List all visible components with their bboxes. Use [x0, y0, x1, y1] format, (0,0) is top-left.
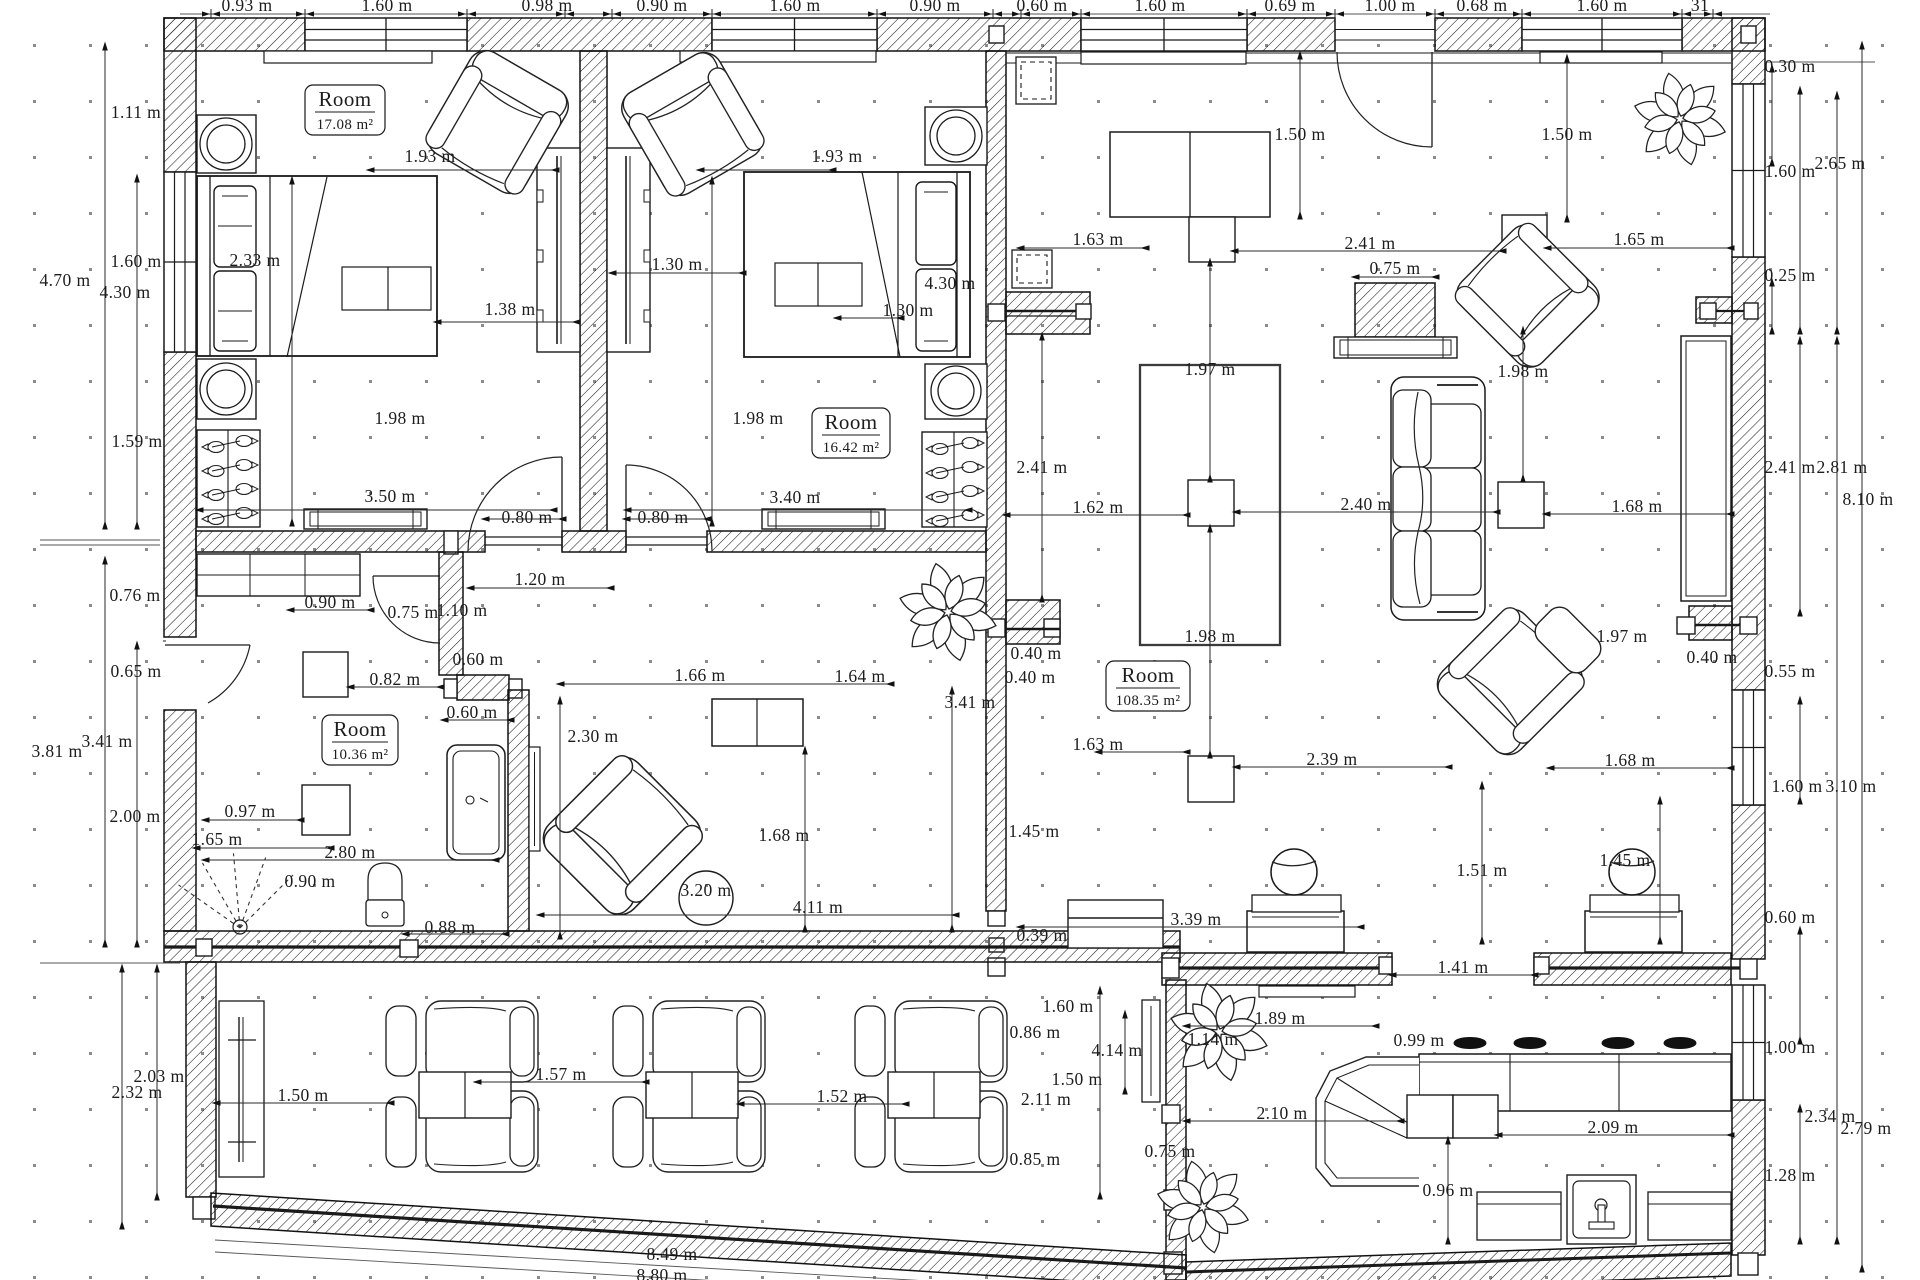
svg-text:1.28 m: 1.28 m: [1764, 1165, 1815, 1185]
svg-text:Room: Room: [1122, 663, 1175, 687]
svg-text:1.62 m: 1.62 m: [1072, 497, 1123, 517]
svg-text:1.97 m: 1.97 m: [1184, 359, 1235, 379]
svg-text:4.30 m: 4.30 m: [924, 273, 975, 293]
svg-text:0.40 m: 0.40 m: [1010, 643, 1061, 663]
svg-text:1.68 m: 1.68 m: [1611, 496, 1662, 516]
svg-text:3.41 m: 3.41 m: [944, 692, 995, 712]
svg-text:1.60 m: 1.60 m: [769, 0, 820, 15]
svg-text:10.36 m²: 10.36 m²: [332, 747, 389, 763]
svg-text:0.75 m: 0.75 m: [1369, 258, 1420, 278]
svg-text:0.68 m: 0.68 m: [1456, 0, 1507, 15]
svg-text:0.99 m: 0.99 m: [1393, 1030, 1444, 1050]
svg-text:1.60 m: 1.60 m: [1576, 0, 1627, 15]
svg-text:16.42 m²: 16.42 m²: [823, 440, 880, 456]
svg-text:2.79 m: 2.79 m: [1840, 1118, 1891, 1138]
svg-text:Room: Room: [334, 717, 387, 741]
svg-text:0.60 m: 0.60 m: [446, 702, 497, 722]
svg-text:17.08 m²: 17.08 m²: [317, 117, 374, 133]
svg-text:8.10 m: 8.10 m: [1842, 489, 1893, 509]
svg-text:2.10 m: 2.10 m: [1256, 1103, 1307, 1123]
svg-text:3.40 m: 3.40 m: [769, 487, 820, 507]
svg-text:1.45 m: 1.45 m: [1599, 850, 1650, 870]
svg-text:Room: Room: [825, 410, 878, 434]
svg-text:0.55 m: 0.55 m: [1764, 661, 1815, 681]
svg-text:1.98 m: 1.98 m: [374, 408, 425, 428]
svg-text:2.41 m: 2.41 m: [1764, 457, 1815, 477]
svg-text:1.60 m: 1.60 m: [110, 251, 161, 271]
svg-text:1.52 m: 1.52 m: [816, 1086, 867, 1106]
svg-text:0.65 m: 0.65 m: [110, 661, 161, 681]
svg-text:1.30 m: 1.30 m: [882, 300, 933, 320]
svg-text:1.30 m: 1.30 m: [651, 254, 702, 274]
svg-text:8.49 m: 8.49 m: [646, 1244, 697, 1264]
svg-text:1.20 m: 1.20 m: [514, 569, 565, 589]
svg-text:1.50 m: 1.50 m: [1051, 1069, 1102, 1089]
svg-text:3.41 m: 3.41 m: [81, 731, 132, 751]
svg-text:1.50 m: 1.50 m: [1541, 124, 1592, 144]
svg-text:2.30 m: 2.30 m: [567, 726, 618, 746]
svg-text:2.80 m: 2.80 m: [324, 842, 375, 862]
svg-text:0.69 m: 0.69 m: [1264, 0, 1315, 15]
svg-text:4.11 m: 4.11 m: [793, 897, 843, 917]
svg-text:0.30 m: 0.30 m: [1764, 56, 1815, 76]
svg-text:2.09 m: 2.09 m: [1587, 1117, 1638, 1137]
svg-text:1.60 m: 1.60 m: [1771, 776, 1822, 796]
svg-text:1.64 m: 1.64 m: [834, 666, 885, 686]
svg-text:2.00 m: 2.00 m: [109, 806, 160, 826]
svg-text:3.10 m: 3.10 m: [1825, 776, 1876, 796]
svg-text:1.14 m: 1.14 m: [1187, 1029, 1238, 1049]
svg-text:1.89 m: 1.89 m: [1254, 1008, 1305, 1028]
svg-text:1.98 m: 1.98 m: [732, 408, 783, 428]
svg-text:1.00 m: 1.00 m: [1764, 1037, 1815, 1057]
svg-text:3.50 m: 3.50 m: [364, 486, 415, 506]
svg-text:1.38 m: 1.38 m: [484, 299, 535, 319]
svg-text:1.60 m: 1.60 m: [1764, 161, 1815, 181]
svg-text:0.39 m: 0.39 m: [1016, 925, 1067, 945]
svg-text:1.63 m: 1.63 m: [1072, 229, 1123, 249]
svg-text:1.93 m: 1.93 m: [811, 146, 862, 166]
svg-text:2.11 m: 2.11 m: [1021, 1089, 1071, 1109]
svg-text:1.10 m: 1.10 m: [436, 600, 487, 620]
svg-text:2.40 m: 2.40 m: [1340, 494, 1391, 514]
svg-text:0.93 m: 0.93 m: [221, 0, 272, 15]
svg-text:0.88 m: 0.88 m: [424, 917, 475, 937]
svg-text:4.14 m: 4.14 m: [1091, 1040, 1142, 1060]
svg-text:0.90 m: 0.90 m: [909, 0, 960, 15]
svg-text:2.41 m: 2.41 m: [1344, 233, 1395, 253]
svg-text:1.65 m: 1.65 m: [191, 829, 242, 849]
svg-text:1.66 m: 1.66 m: [674, 665, 725, 685]
svg-text:1.63 m: 1.63 m: [1072, 734, 1123, 754]
svg-text:1.11 m: 1.11 m: [111, 102, 161, 122]
svg-text:4.70 m: 4.70 m: [39, 270, 90, 290]
svg-text:0.40 m: 0.40 m: [1686, 647, 1737, 667]
svg-text:1.98 m: 1.98 m: [1184, 626, 1235, 646]
svg-text:4.30 m: 4.30 m: [99, 282, 150, 302]
svg-text:0.60 m: 0.60 m: [1016, 0, 1067, 15]
svg-text:1.98 m: 1.98 m: [1497, 361, 1548, 381]
svg-text:0.90 m: 0.90 m: [284, 871, 335, 891]
svg-text:0.96 m: 0.96 m: [1422, 1180, 1473, 1200]
svg-text:3.81 m: 3.81 m: [31, 741, 82, 761]
svg-text:0.76 m: 0.76 m: [109, 585, 160, 605]
svg-text:0.90 m: 0.90 m: [636, 0, 687, 15]
svg-text:0.60 m: 0.60 m: [452, 649, 503, 669]
svg-text:1.59 m: 1.59 m: [111, 431, 162, 451]
svg-text:0.82 m: 0.82 m: [369, 669, 420, 689]
svg-text:0.40 m: 0.40 m: [1004, 667, 1055, 687]
svg-text:1.41 m: 1.41 m: [1437, 957, 1488, 977]
svg-text:0.86 m: 0.86 m: [1009, 1022, 1060, 1042]
svg-text:3.39 m: 3.39 m: [1170, 909, 1221, 929]
svg-text:0.80 m: 0.80 m: [637, 507, 688, 527]
svg-text:1.51 m: 1.51 m: [1456, 860, 1507, 880]
svg-text:1.65 m: 1.65 m: [1613, 229, 1664, 249]
svg-text:8.80 m: 8.80 m: [636, 1265, 687, 1280]
svg-text:1.68 m: 1.68 m: [758, 825, 809, 845]
svg-text:0.80 m: 0.80 m: [501, 507, 552, 527]
svg-text:31: 31: [1691, 0, 1709, 15]
svg-text:1.68 m: 1.68 m: [1604, 750, 1655, 770]
svg-text:1.50 m: 1.50 m: [1274, 124, 1325, 144]
svg-text:2.65 m: 2.65 m: [1814, 153, 1865, 173]
svg-text:0.75 m: 0.75 m: [1144, 1141, 1195, 1161]
svg-text:0.25 m: 0.25 m: [1764, 265, 1815, 285]
svg-text:1.60 m: 1.60 m: [1042, 996, 1093, 1016]
svg-text:108.35 m²: 108.35 m²: [1116, 693, 1181, 709]
svg-text:0.85 m: 0.85 m: [1009, 1149, 1060, 1169]
svg-text:2.32 m: 2.32 m: [111, 1082, 162, 1102]
svg-text:0.97 m: 0.97 m: [224, 801, 275, 821]
svg-text:1.45 m: 1.45 m: [1008, 821, 1059, 841]
svg-text:2.81 m: 2.81 m: [1816, 457, 1867, 477]
svg-text:1.60 m: 1.60 m: [361, 0, 412, 15]
svg-text:3.20 m: 3.20 m: [680, 880, 731, 900]
svg-text:2.33 m: 2.33 m: [229, 250, 280, 270]
svg-text:1.97 m: 1.97 m: [1596, 626, 1647, 646]
svg-text:Room: Room: [319, 87, 372, 111]
svg-text:1.93 m: 1.93 m: [404, 146, 455, 166]
svg-text:0.60 m: 0.60 m: [1764, 907, 1815, 927]
svg-text:0.75 m: 0.75 m: [387, 602, 438, 622]
svg-text:1.57 m: 1.57 m: [535, 1064, 586, 1084]
svg-text:0.98 m: 0.98 m: [521, 0, 572, 15]
svg-text:1.50 m: 1.50 m: [277, 1085, 328, 1105]
svg-text:1.60 m: 1.60 m: [1134, 0, 1185, 15]
svg-text:1.00 m: 1.00 m: [1364, 0, 1415, 15]
svg-text:0.90 m: 0.90 m: [304, 592, 355, 612]
svg-text:2.39 m: 2.39 m: [1306, 749, 1357, 769]
svg-text:2.41 m: 2.41 m: [1016, 457, 1067, 477]
